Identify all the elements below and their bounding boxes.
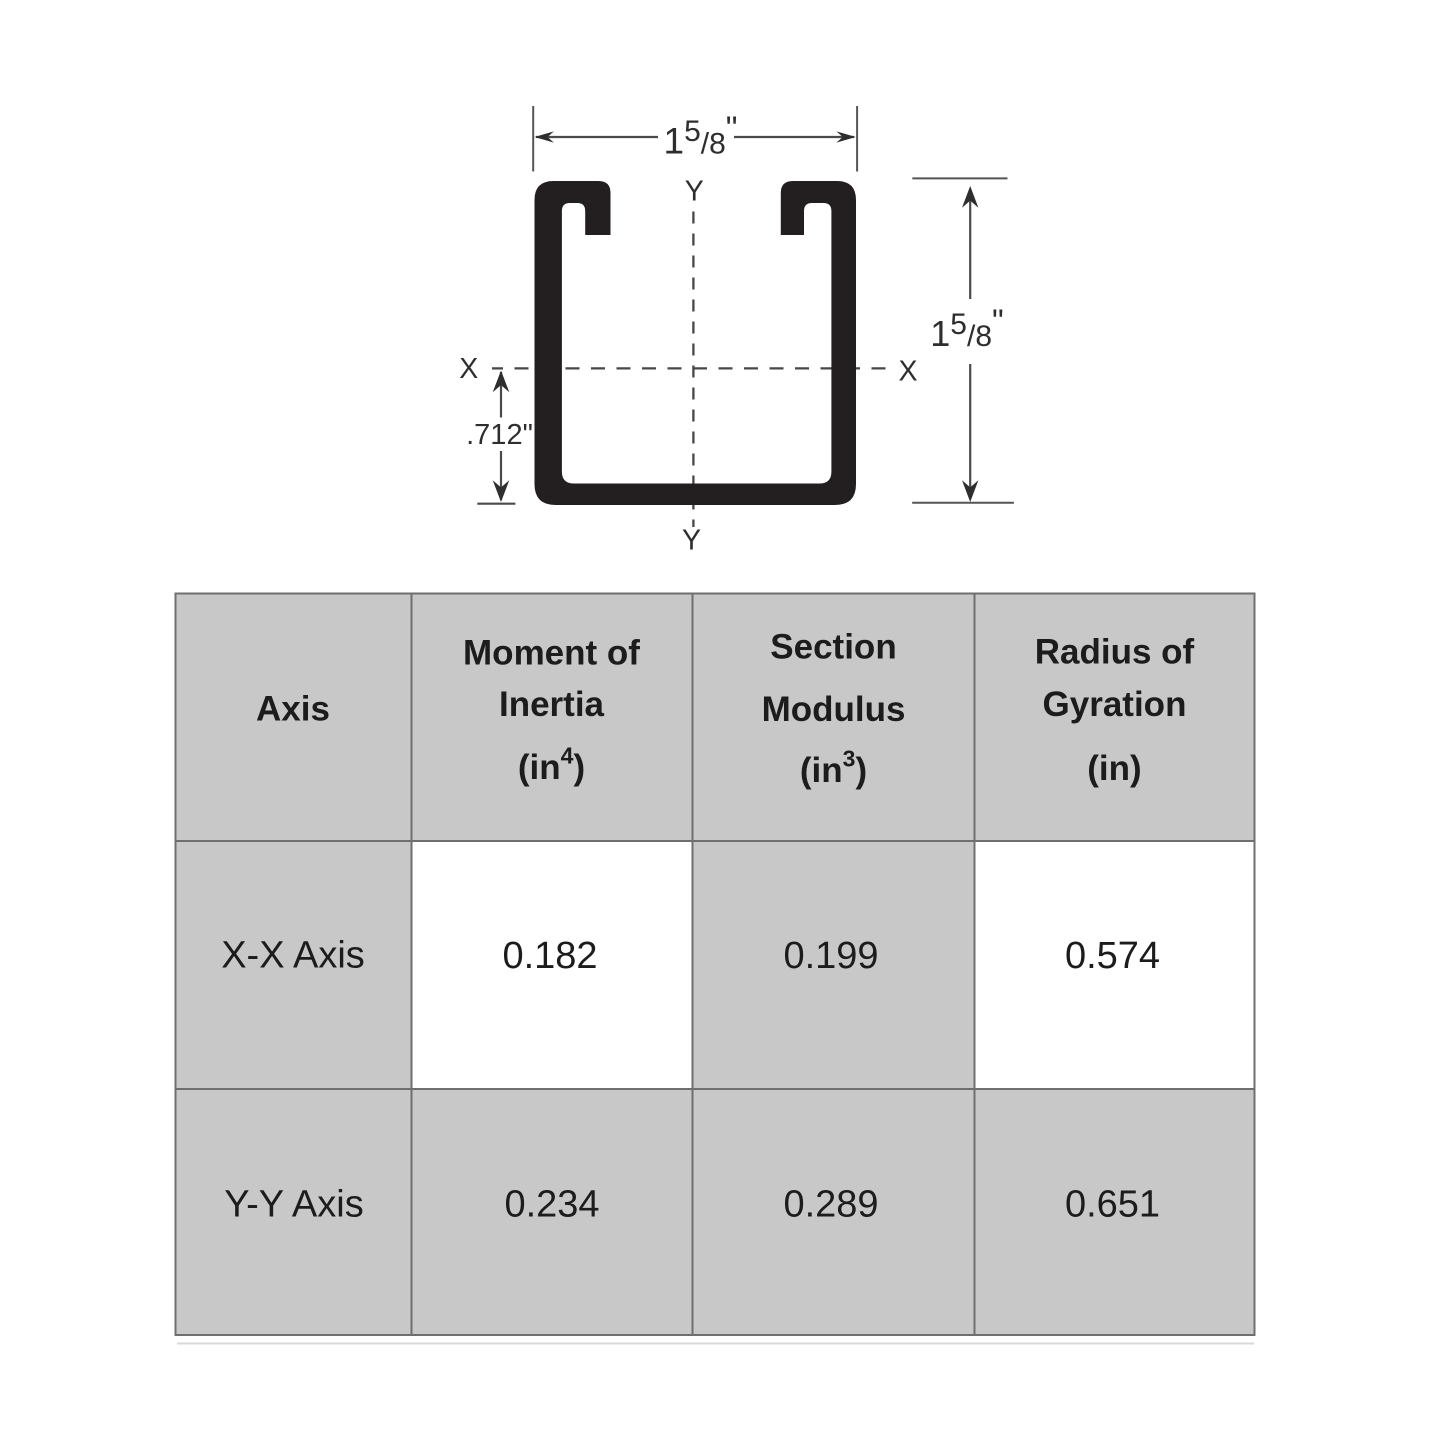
svg-text:(in4): (in4) (518, 743, 585, 788)
svg-text:15/8": 15/8" (930, 302, 1003, 354)
svg-text:Radius of: Radius of (1035, 633, 1195, 672)
svg-text:X: X (459, 353, 478, 385)
svg-text:Inertia: Inertia (499, 685, 605, 724)
svg-text:Axis: Axis (256, 690, 330, 729)
svg-text:Y: Y (685, 176, 704, 208)
svg-text:X-X Axis: X-X Axis (221, 934, 365, 976)
svg-text:0.234: 0.234 (504, 1184, 599, 1226)
svg-text:X: X (898, 356, 917, 388)
svg-text:Y-Y Axis: Y-Y Axis (224, 1184, 363, 1226)
svg-text:0.199: 0.199 (783, 935, 878, 977)
svg-text:.712": .712" (466, 419, 533, 451)
svg-text:0.651: 0.651 (1065, 1184, 1160, 1226)
svg-text:Y: Y (682, 524, 701, 556)
svg-text:Gyration: Gyration (1043, 685, 1187, 724)
svg-text:15/8": 15/8" (663, 110, 737, 162)
svg-text:0.289: 0.289 (783, 1184, 878, 1226)
svg-text:(in3): (in3) (800, 746, 867, 791)
svg-text:Section: Section (770, 628, 896, 667)
svg-text:0.574: 0.574 (1065, 935, 1160, 977)
svg-text:0.182: 0.182 (502, 935, 597, 977)
svg-text:Moment of: Moment of (463, 634, 640, 673)
svg-text:(in): (in) (1087, 749, 1141, 788)
svg-text:Modulus: Modulus (762, 690, 906, 729)
